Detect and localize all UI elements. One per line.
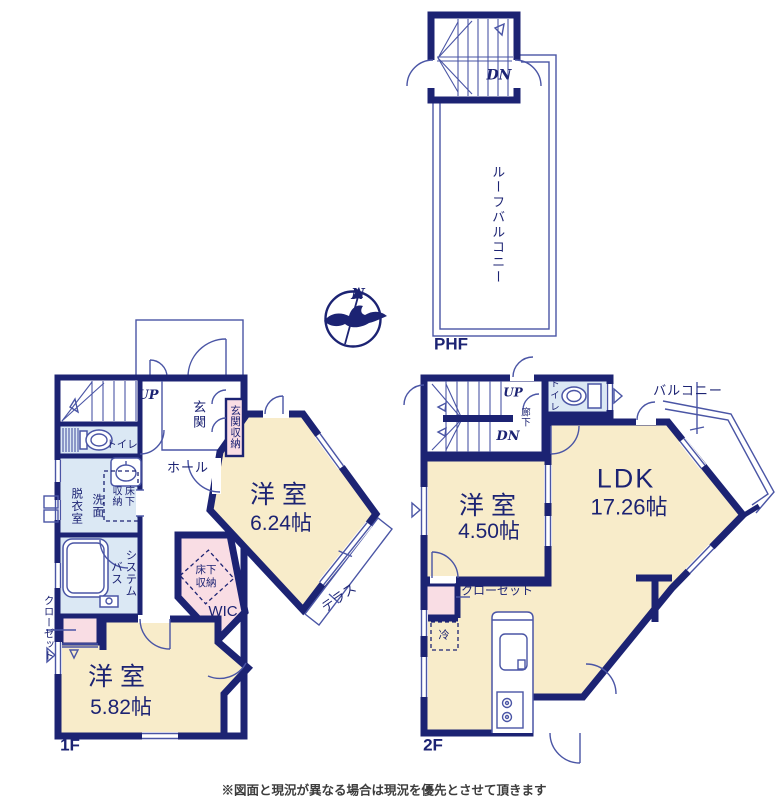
f2-closet-label: クローゼット <box>461 584 533 599</box>
entrance-label: 玄関 <box>190 400 206 430</box>
disclaimer-note: ※図面と現況が異なる場合は現況を優先とさせて頂きます <box>221 783 546 798</box>
wic-label: WIC <box>208 603 237 621</box>
phf-dn-label: DN <box>487 67 512 84</box>
wic-underfloor-storage-label: 床下 収納 <box>196 564 217 590</box>
entrance-door-arc <box>188 339 226 377</box>
f2-stair-landing <box>443 415 513 422</box>
phf-plan <box>407 15 556 336</box>
f1-toilet-label: トイレ <box>106 439 138 452</box>
f2-floor-label: 2F <box>423 736 443 757</box>
f2-closet-box <box>426 585 456 616</box>
room-4-50-name: 洋室 <box>459 491 523 522</box>
f2-bottom-door-arc <box>550 733 580 763</box>
room-5-82-name: 洋室 <box>88 662 152 693</box>
dressing-room-label: 脱衣室 <box>69 487 83 525</box>
kitchen-counter <box>492 612 533 733</box>
compass-north-label: N <box>351 285 365 303</box>
f1-floor-label: 1F <box>60 736 80 757</box>
balcony-label: バルコニー <box>653 383 723 399</box>
room-6-24-size: 6.24帖 <box>250 511 312 537</box>
f1-staircase-room <box>58 378 140 424</box>
ldk-name: LDK <box>597 463 656 496</box>
f1-up-label: UP <box>137 388 158 404</box>
washstand-label: 洗面 <box>90 494 104 519</box>
ldk-size: 17.26帖 <box>590 495 667 522</box>
roof-balcony-label: ルーフバルコニー <box>489 165 505 285</box>
f2-toilet-label: トイレ <box>547 379 559 414</box>
f1-closet-label: クローゼット <box>41 595 54 661</box>
entrance-storage-label: 玄関収納 <box>228 405 241 449</box>
room-4-50-size: 4.50帖 <box>458 519 520 545</box>
washbasin-icon <box>111 458 141 486</box>
refrigerator-label: 冷 <box>439 629 450 642</box>
system-bath-label: システム バス <box>109 549 138 597</box>
corridor-label: 廊下 <box>518 407 530 427</box>
phf-floor-label: PHF <box>434 335 468 356</box>
underfloor-storage-label: 床下 収納 <box>109 486 134 507</box>
f2-dn-label: DN <box>496 429 519 445</box>
room-6-24-name: 洋室 <box>250 480 314 511</box>
floor2-plan <box>404 357 774 763</box>
porch-small-door-arc <box>150 360 167 377</box>
floorplan-page: DN ルーフバルコニー PHF N UP 玄関 玄関収納 ホール トイレ 脱衣室… <box>0 0 781 800</box>
room-5-82-size: 5.82帖 <box>90 695 152 721</box>
hall-label: ホール <box>167 460 209 476</box>
f2-up-label: UP <box>503 386 523 401</box>
